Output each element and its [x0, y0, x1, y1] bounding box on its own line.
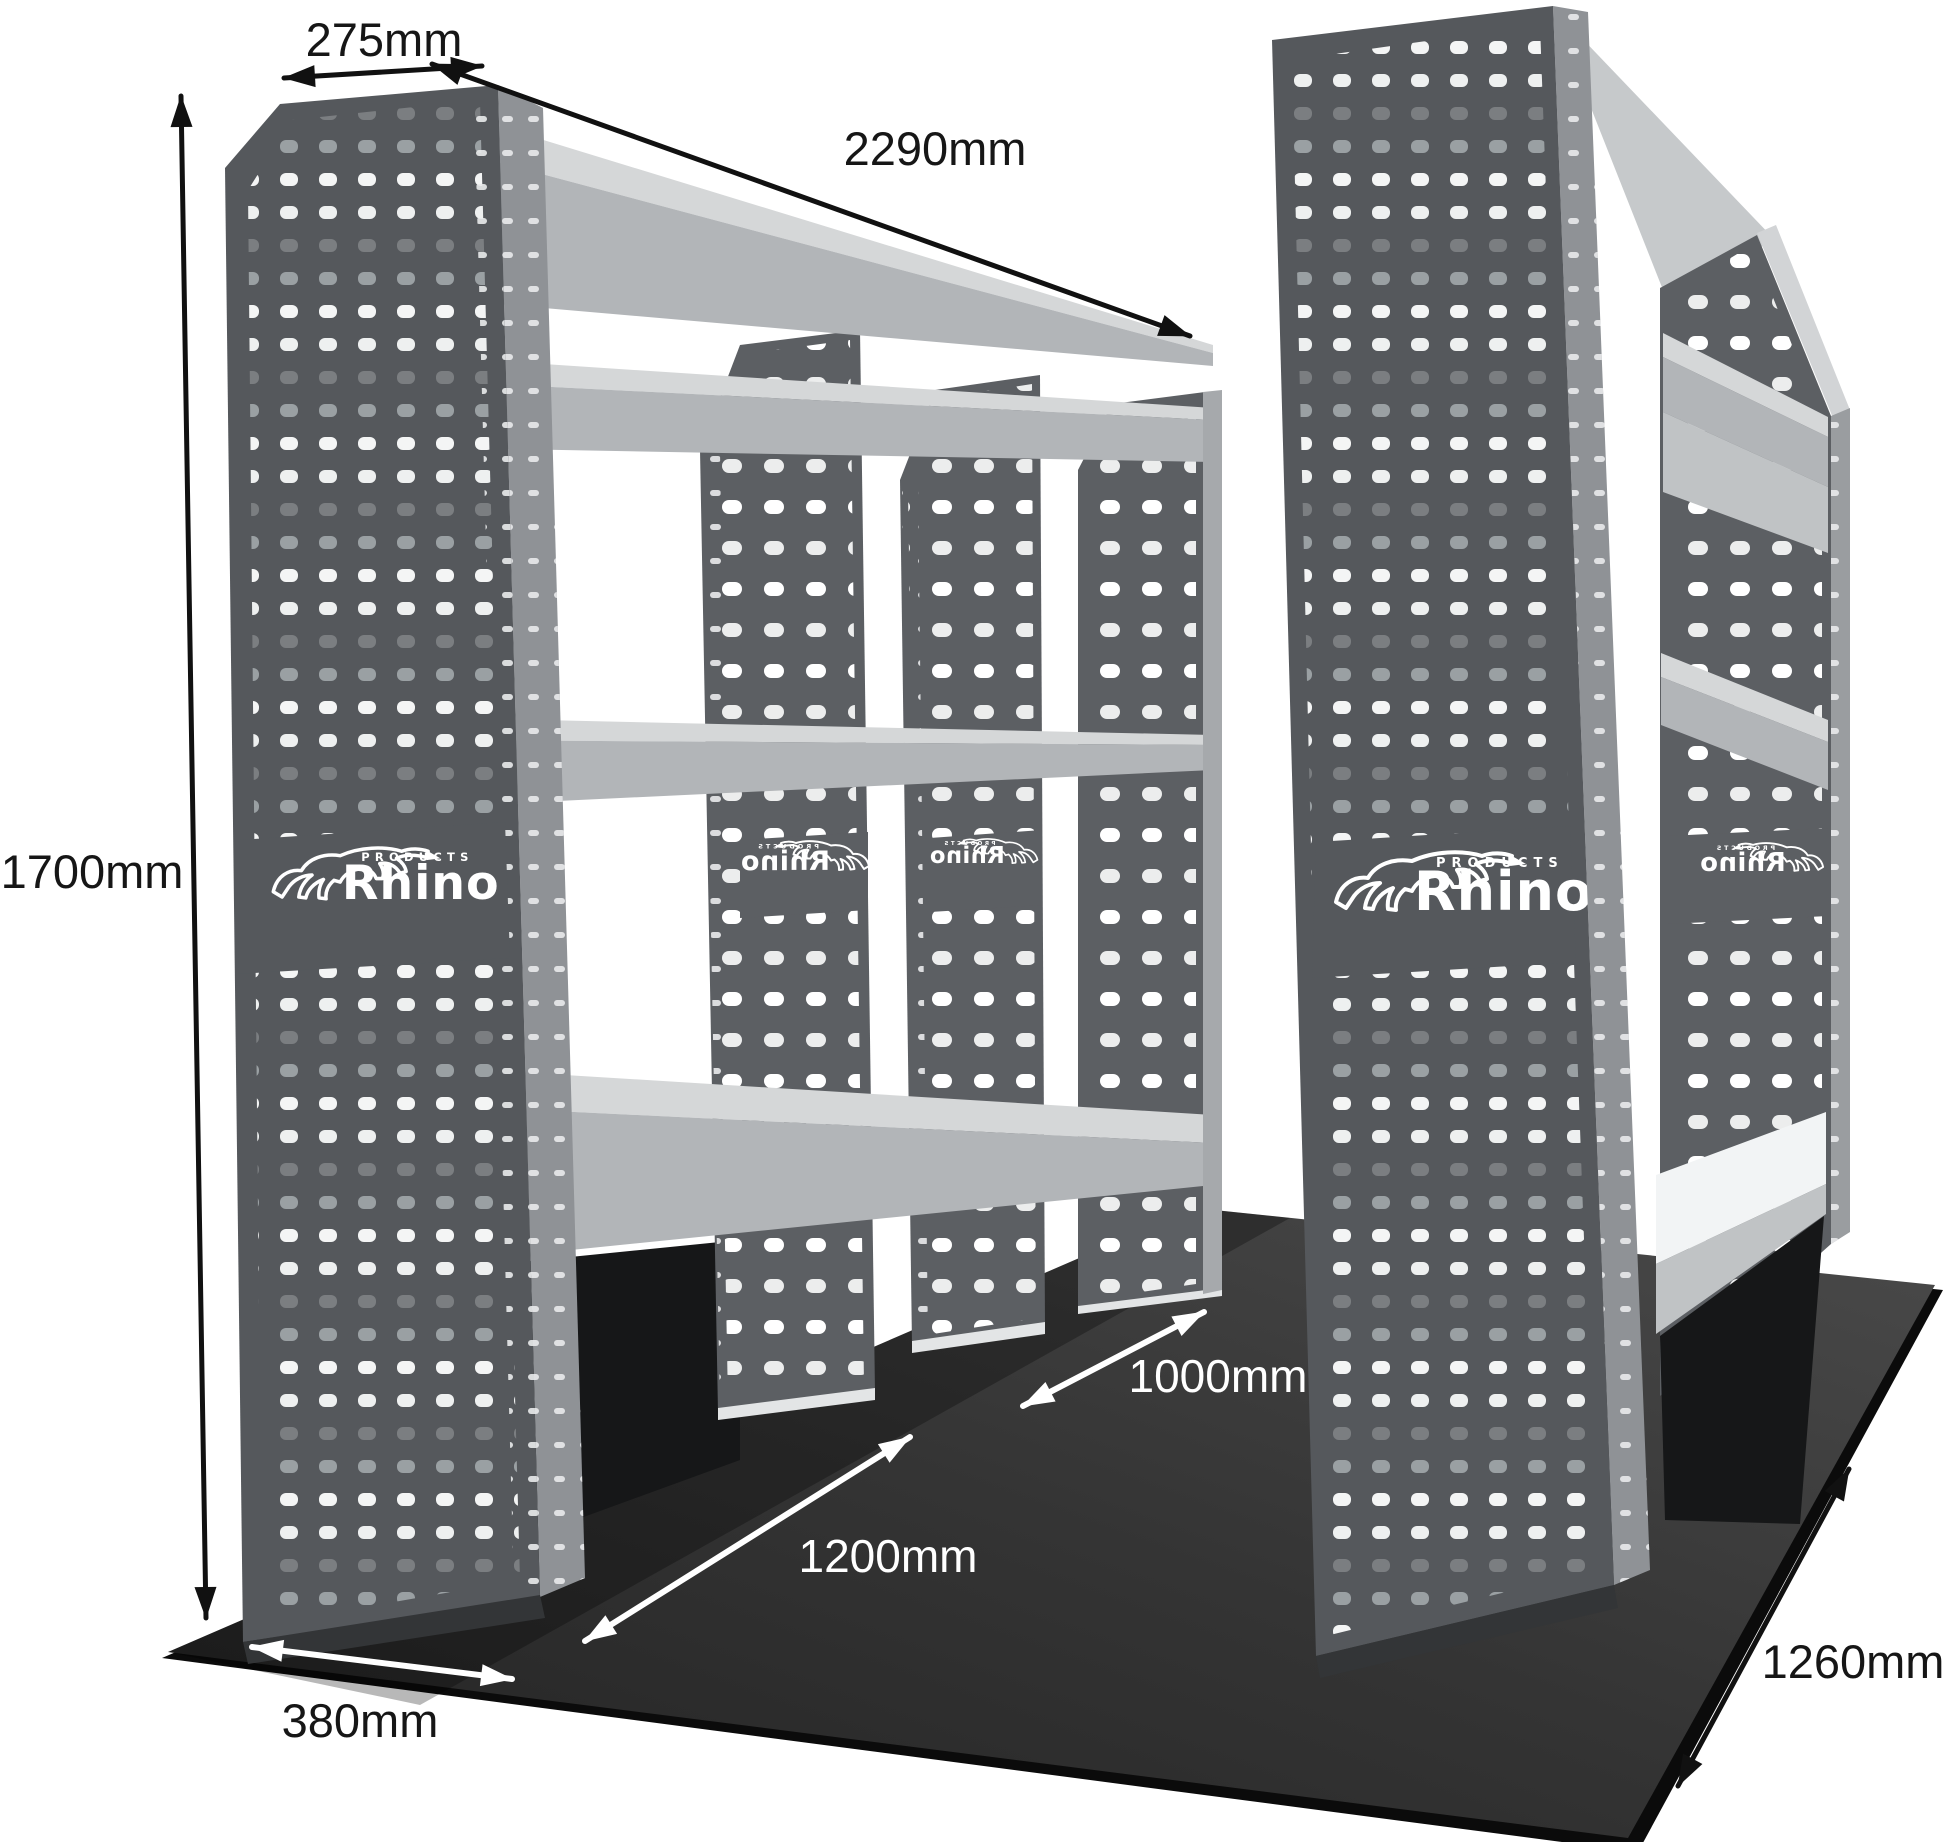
dim-base-depth-label: 380mm: [282, 1694, 439, 1747]
dim-top-depth-label: 275mm: [306, 13, 463, 66]
left-rack-end-post: [1203, 390, 1222, 1294]
dim-floor-width-label: 1260mm: [1762, 1635, 1945, 1688]
racking-diagram: Rhino PRODUCTS: [0, 0, 1947, 1842]
dim-aisle-width-label: 1000mm: [1129, 1350, 1308, 1402]
dim-height-label: 1700mm: [1, 845, 184, 898]
right-rack: [1272, 6, 1850, 1678]
diagram-stage: Rhino PRODUCTS: [0, 0, 1947, 1842]
dim-length-label: 2290mm: [844, 122, 1027, 175]
right-rack-far-panel-edge-slots: [1831, 408, 1850, 1244]
dim-height-arrow: [181, 96, 206, 1618]
dim-aisle-length-label: 1200mm: [799, 1530, 978, 1582]
